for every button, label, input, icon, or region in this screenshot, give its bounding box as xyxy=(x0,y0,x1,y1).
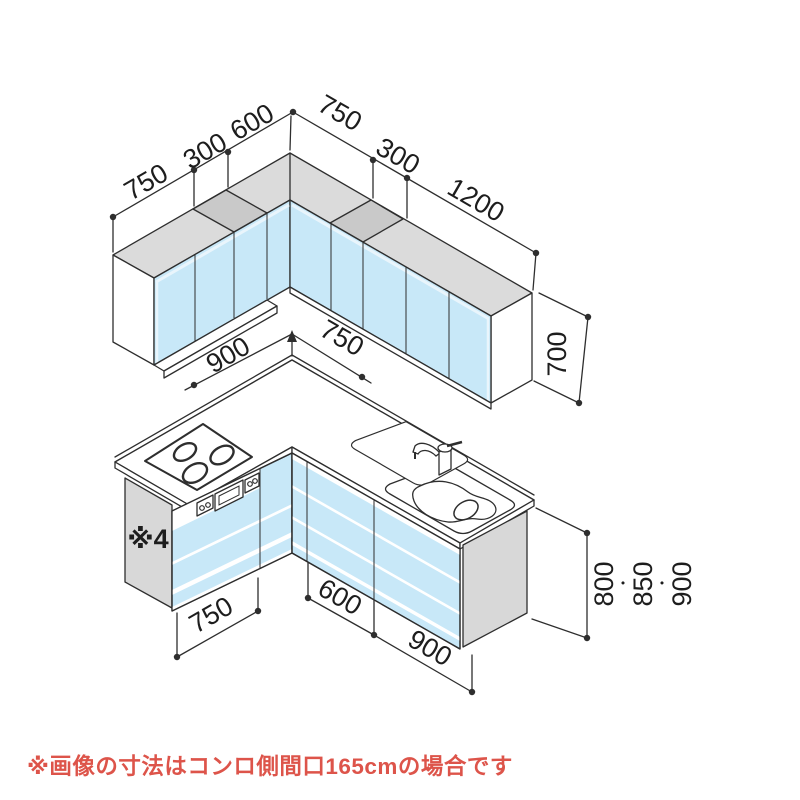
kitchen-diagram-page: 750 300 600 750 300 1200 700 900 750 ※4 … xyxy=(0,0,800,800)
panel-note-label: ※4 xyxy=(127,524,168,554)
dim-upper-left-300: 300 xyxy=(178,127,232,176)
kitchen-dimension-diagram: 750 300 600 750 300 1200 700 900 750 ※4 … xyxy=(0,0,800,800)
dim-upper-left-600: 600 xyxy=(225,98,279,147)
dim-base-height-900: 900 xyxy=(667,561,697,606)
dim-upper-right-1200: 1200 xyxy=(442,172,509,228)
dim-upper-left-750: 750 xyxy=(119,158,173,207)
image-note-caption: ※画像の寸法はコンロ側間口165cmの場合です xyxy=(27,749,787,781)
dim-upper-right-750: 750 xyxy=(313,89,367,138)
dim-upper-right-300: 300 xyxy=(371,132,425,181)
dim-base-heights: 800 ・ 850 ・ 900 xyxy=(589,561,697,606)
dim-upper-height-700: 700 xyxy=(542,331,572,376)
